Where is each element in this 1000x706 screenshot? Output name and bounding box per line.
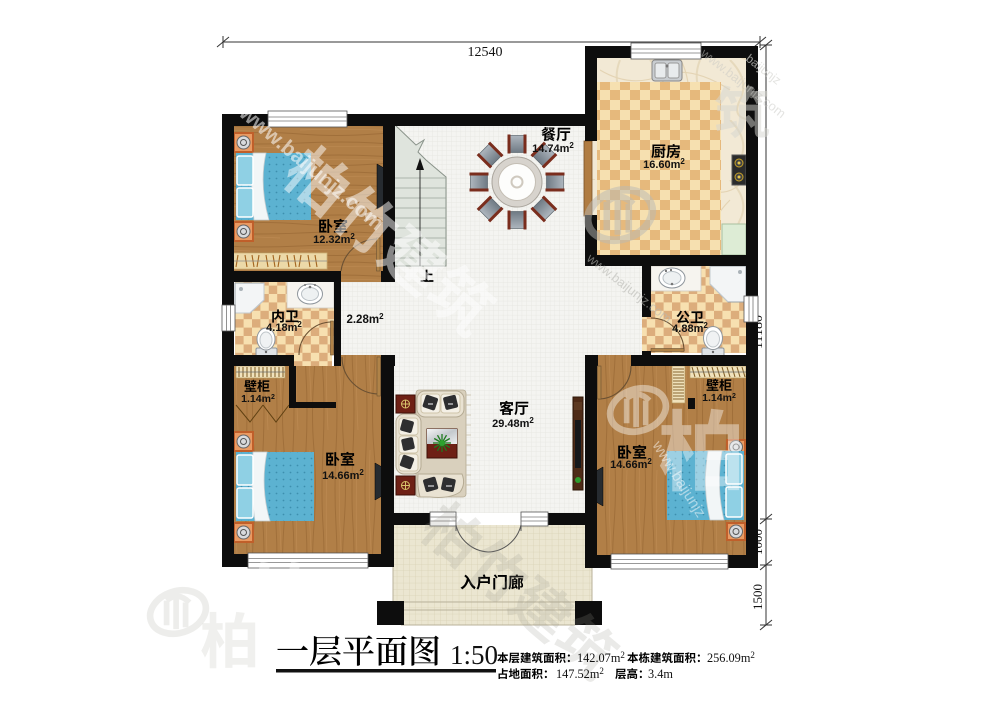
svg-text:1.14m2: 1.14m2 [241,393,275,405]
svg-text:256.09m2: 256.09m2 [707,650,755,665]
svg-text:29.48m2: 29.48m2 [492,416,534,430]
svg-text:1500: 1500 [750,584,765,610]
svg-text:142.07m2: 142.07m2 [577,650,625,665]
svg-text:1.14m2: 1.14m2 [702,392,736,404]
svg-text:12540: 12540 [468,45,503,60]
svg-text:12.32m2: 12.32m2 [313,232,355,246]
svg-text:14.66m2: 14.66m2 [610,457,652,471]
svg-text:3.4m: 3.4m [648,667,673,681]
svg-text:14.66m2: 14.66m2 [322,468,364,482]
svg-text:147.52m2: 147.52m2 [556,666,604,681]
svg-text:14.74m2: 14.74m2 [532,141,574,155]
svg-text:2.28m2: 2.28m2 [346,312,384,326]
svg-text:4.88m2: 4.88m2 [672,321,708,335]
svg-text:16.60m2: 16.60m2 [643,157,685,171]
svg-text:4.18m2: 4.18m2 [266,320,302,334]
svg-text:1:50: 1:50 [450,640,498,670]
